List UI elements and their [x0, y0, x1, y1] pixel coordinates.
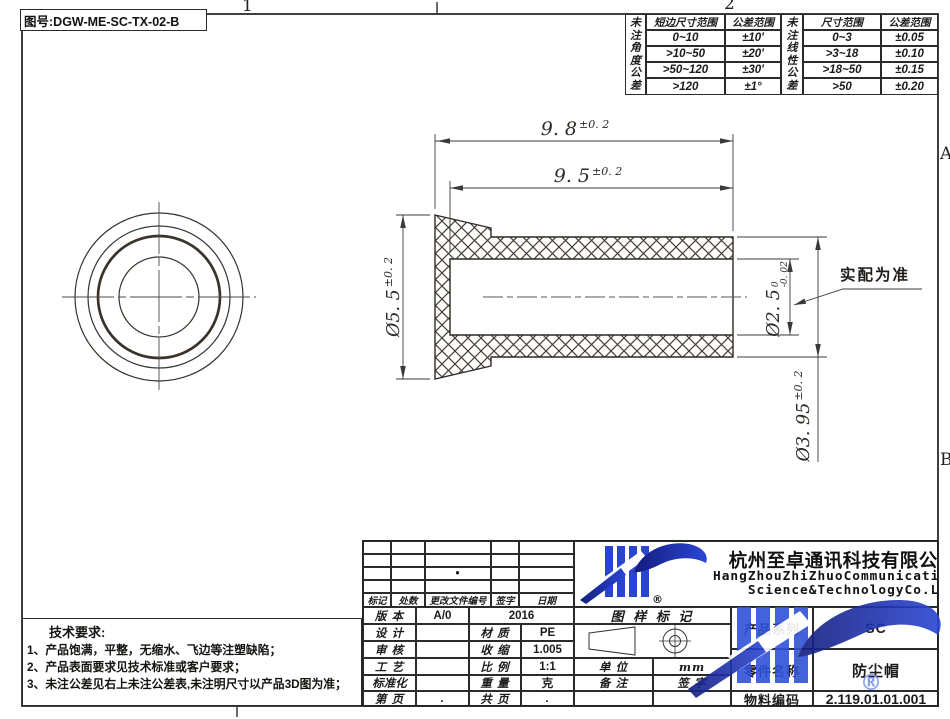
tolerance-tables: 未注角度公差 短边尺寸范围 公差范围 0~10 ±10' >10~50 ±20'… — [625, 14, 938, 95]
linear-tol-value: ±0.20 — [881, 78, 938, 95]
dim-flange-diameter: Ø5. 5±0. 2 — [382, 232, 404, 362]
sample-mark-header: 图 样 标 记 — [574, 607, 731, 624]
dim-bore-diameter: Ø2. 50-0. 02 — [764, 239, 790, 359]
revision-cell — [391, 580, 425, 593]
zone-marker-A: A — [940, 144, 950, 164]
linear-tol-range: >50 — [803, 78, 881, 95]
pages-value: . — [521, 691, 574, 707]
scale-label: 比 例 — [469, 658, 521, 675]
revision-cell — [491, 580, 519, 593]
linear-tol-range: >18~50 — [803, 62, 881, 78]
unit-label: 单 位 — [574, 658, 653, 675]
dim-overall-length: 9. 8±0. 2 — [475, 118, 675, 140]
rev-header-file: 更改文件编号 — [425, 593, 491, 607]
dim-body-diameter: Ø3. 95±0. 2 — [792, 346, 814, 486]
empty-cell — [574, 691, 653, 707]
revision-cell — [363, 554, 391, 567]
angle-tol-side-header: 未注角度公差 — [625, 14, 646, 95]
linear-tol-value: ±0.10 — [881, 46, 938, 62]
revision-cell — [425, 580, 491, 593]
revision-cell-dot: • — [425, 567, 491, 580]
shrink-value: 1.005 — [521, 641, 574, 658]
design-value — [416, 624, 469, 641]
zone-marker-B: B — [940, 450, 950, 470]
material-code-value: 2.119.01.01.001 — [813, 691, 939, 707]
check-value — [416, 641, 469, 658]
angle-tol-value: ±30' — [725, 62, 781, 78]
design-label: 设 计 — [363, 624, 416, 641]
rev-header-sign: 签字 — [491, 593, 519, 607]
tech-requirement-item: 3、未注公差见右上未注公差表,未注明尺寸以产品3D图为准； — [27, 676, 357, 693]
title-block: • 标记 处数 更改文件编号 签字 日期 版 本 A/0 2016 设 计 材 … — [362, 540, 938, 706]
angle-tol-range: >10~50 — [646, 46, 725, 62]
weight-label: 重 量 — [469, 675, 521, 691]
svg-text:®: ® — [652, 593, 664, 605]
series-label: 产品系列 — [731, 607, 813, 649]
linear-tol-range: 0~3 — [803, 30, 881, 46]
revision-cell — [519, 541, 574, 554]
revision-cell — [391, 541, 425, 554]
linear-tol-col-header: 公差范围 — [881, 14, 938, 30]
process-label: 工 艺 — [363, 658, 416, 675]
unit-value: mm — [653, 658, 731, 675]
company-name-en2: Science&TechnologyCo.Ltd — [713, 584, 939, 598]
version-label: 版 本 — [363, 607, 416, 624]
revision-cell — [491, 554, 519, 567]
revision-cell — [391, 554, 425, 567]
angle-tol-value: ±10' — [725, 30, 781, 46]
process-value — [416, 658, 469, 675]
tech-requirement-item: 2、产品表面要求见技术标准或客户要求； — [27, 659, 357, 676]
material-code-label: 物料编码 — [731, 691, 813, 707]
zone-marker-1: 1 — [242, 0, 253, 16]
revision-cell — [519, 567, 574, 580]
rev-header-mark: 标记 — [363, 593, 391, 607]
tech-requirements-title: 技术要求: — [49, 622, 357, 641]
series-value: SC — [813, 607, 939, 649]
remark-label: 备 注 — [574, 675, 653, 691]
company-cell: ® 杭州至卓通讯科技有限公司 HangZhouZhiZhuoCommunicat… — [574, 541, 939, 607]
dim-inner-depth: 9. 5±0. 2 — [488, 165, 688, 187]
revision-cell — [363, 541, 391, 554]
year-value: 2016 — [469, 607, 574, 624]
angle-tol-col-header: 短边尺寸范围 — [646, 14, 725, 30]
angle-tol-range: >50~120 — [646, 62, 725, 78]
revision-cell — [425, 541, 491, 554]
shrink-label: 收 缩 — [469, 641, 521, 658]
angle-tol-value: ±20' — [725, 46, 781, 62]
tech-requirement-item: 1、产品饱满，平整，无缩水、飞边等注塑缺陷； — [27, 642, 357, 659]
linear-tol-value: ±0.05 — [881, 30, 938, 46]
part-name-label: 零件名称 — [731, 649, 813, 691]
sign-label: 签 字 — [653, 675, 731, 691]
weight-value: 克 — [521, 675, 574, 691]
page-label: 第 页 — [363, 691, 416, 707]
revision-cell — [363, 567, 391, 580]
company-name-en1: HangZhouZhiZhuoCommunication — [713, 570, 939, 584]
projection-symbol-cell — [574, 624, 731, 658]
drawing-sheet: 图号:DGW-ME-SC-TX-02-B 1 2 A B 未注角度公差 短边尺寸… — [0, 0, 950, 719]
revision-cell — [425, 554, 491, 567]
linear-tol-col-header: 尺寸范围 — [803, 14, 881, 30]
company-logo: ® — [579, 543, 713, 605]
linear-tol-range: >3~18 — [803, 46, 881, 62]
rev-header-date: 日期 — [519, 593, 574, 607]
angle-tol-col-header: 公差范围 — [725, 14, 781, 30]
standardization-label: 标准化 — [363, 675, 416, 691]
page-value: . — [416, 691, 469, 707]
empty-cell — [653, 691, 731, 707]
pages-label: 共 页 — [469, 691, 521, 707]
company-text: 杭州至卓通讯科技有限公司 HangZhouZhiZhuoCommunicatio… — [713, 551, 939, 598]
tech-requirements: 技术要求: 1、产品饱满，平整，无缩水、飞边等注塑缺陷； 2、产品表面要求见技术… — [22, 618, 362, 706]
version-value: A/0 — [416, 607, 469, 624]
drawing-number-box: 图号:DGW-ME-SC-TX-02-B — [20, 9, 207, 31]
angle-tol-range: 0~10 — [646, 30, 725, 46]
revision-cell — [491, 567, 519, 580]
check-label: 审 核 — [363, 641, 416, 658]
standardization-value — [416, 675, 469, 691]
projection-symbol — [575, 625, 730, 657]
zone-marker-2: 2 — [724, 0, 735, 14]
linear-tol-value: ±0.15 — [881, 62, 938, 78]
part-name-value: 防尘帽 — [813, 649, 939, 691]
material-value: PE — [521, 624, 574, 641]
revision-cell — [491, 541, 519, 554]
angle-tol-range: >120 — [646, 78, 725, 95]
company-name-cn: 杭州至卓通讯科技有限公司 — [713, 551, 939, 570]
revision-cell — [519, 554, 574, 567]
linear-tol-side-header: 未注线性公差 — [781, 14, 803, 95]
revision-cell — [391, 567, 425, 580]
revision-cell — [519, 580, 574, 593]
scale-value: 1:1 — [521, 658, 574, 675]
material-label: 材 质 — [469, 624, 521, 641]
angle-tol-value: ±1° — [725, 78, 781, 95]
fit-note: 实配为准 — [840, 263, 932, 285]
revision-cell — [363, 580, 391, 593]
rev-header-count: 处数 — [391, 593, 425, 607]
